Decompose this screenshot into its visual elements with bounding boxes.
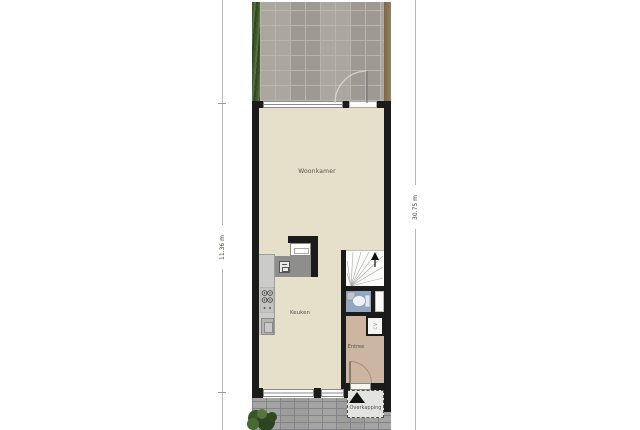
wall-top-a	[252, 101, 263, 108]
garden-fence	[384, 2, 391, 101]
kitchen-appliance	[290, 243, 311, 256]
garden-door-swing-arc	[333, 68, 373, 105]
stove-icon	[260, 287, 274, 313]
understairs-closet	[375, 291, 384, 312]
dimension-label-left: 11.36 m	[216, 225, 229, 269]
canopy-label: Overkapping	[347, 404, 384, 412]
wall-wc-right	[371, 291, 375, 312]
wall-right	[384, 101, 391, 412]
kitchen-worktop	[272, 256, 311, 277]
meter-closet: CV	[366, 316, 384, 336]
plant-icon	[246, 404, 282, 430]
meter-closet-label: CV	[373, 322, 378, 330]
wall-entry-bottom-b	[371, 383, 391, 390]
wall-bottom-b	[314, 388, 321, 398]
kitchen-island-wall-right	[311, 236, 318, 277]
staircase	[346, 250, 384, 286]
stair-treads	[347, 252, 383, 286]
wall-top-b	[377, 101, 391, 108]
floorplan-canvas: Overkapping CV	[0, 0, 640, 430]
oven-icon	[279, 261, 290, 273]
garden-window	[263, 101, 343, 108]
sink-icon	[261, 318, 274, 335]
wall-below-stairs	[341, 286, 384, 291]
garden-hedge	[252, 2, 260, 101]
dimension-tick-left-top	[218, 103, 226, 104]
dimension-label-right: 30.75 m	[409, 185, 422, 229]
entrance-arrow-icon	[349, 392, 365, 404]
front-window-1	[263, 389, 314, 397]
entry-label: Entree	[344, 343, 368, 351]
kitchen-label: Keuken	[285, 308, 315, 317]
front-door-swing-arc	[344, 357, 374, 385]
stairs-up-arrow-icon	[371, 252, 379, 267]
front-window-2	[321, 389, 344, 397]
wall-bottom-a	[252, 388, 263, 398]
dimension-tick-left-bottom	[218, 392, 226, 393]
living-room-label: Woonkamer	[295, 167, 339, 176]
toilet-icon	[346, 291, 372, 312]
wall-left	[252, 101, 259, 398]
dimension-line-left	[222, 0, 223, 430]
wall-below-wc	[341, 312, 384, 316]
